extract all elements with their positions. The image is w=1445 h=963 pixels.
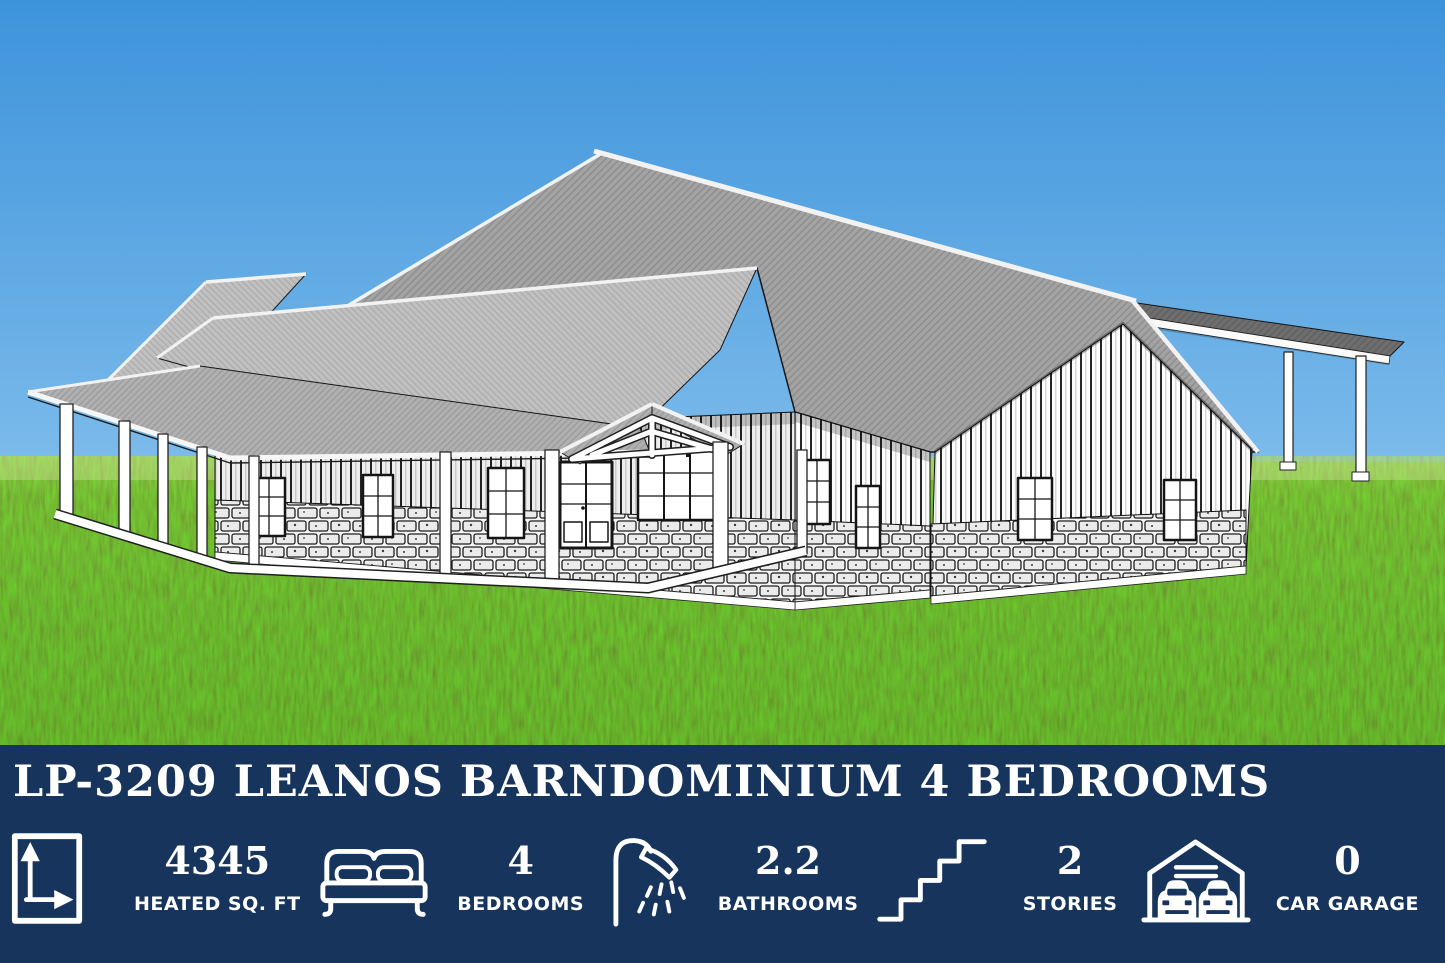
stat-label: BEDROOMS [457,893,584,915]
plan-title: LP-3209 LEANOS BARNDOMINIUM 4 BEDROOMS [0,745,1445,805]
window [804,460,830,524]
stat-value: 2.2 [755,842,821,880]
stat-value: 4 [507,842,533,880]
shower-icon [599,827,694,929]
stat-bedrooms: 4 BEDROOMS [315,831,584,926]
carport-post [1356,356,1366,476]
stat-garage: 0 CAR GARAGE [1140,831,1419,926]
rendering-scene [0,0,1445,745]
stat-value: 2 [1057,842,1083,880]
floor-area-icon [10,831,110,926]
bed-icon [315,831,433,926]
stat-value: 0 [1334,842,1360,880]
stat-label: HEATED SQ. FT [134,893,301,915]
garage-icon [1140,831,1252,926]
info-banner: LP-3209 LEANOS BARNDOMINIUM 4 BEDROOMS 4… [0,745,1445,963]
stat-heated-sqft: 4345 HEATED SQ. FT [10,831,301,926]
window [1164,480,1196,540]
entry-post [713,442,728,568]
stats-row: 4345 HEATED SQ. FT 4 BEDROOMS [0,827,1445,929]
house-plan-card: LP-3209 LEANOS BARNDOMINIUM 4 BEDROOMS 4… [0,0,1445,963]
carport-post [1284,352,1293,466]
window [638,450,716,520]
barndominium-illustration [0,0,1445,745]
stat-value: 4345 [164,842,270,880]
stairs-icon [873,832,991,924]
stat-stories: 2 STORIES [873,832,1125,924]
window [856,486,880,548]
window [488,468,524,538]
stat-label: STORIES [1023,893,1118,915]
front-door [560,462,612,548]
entry-post [545,450,559,584]
stat-label: CAR GARAGE [1276,893,1419,915]
stat-bathrooms: 2.2 BATHROOMS [599,827,859,929]
window [1018,478,1052,540]
stat-label: BATHROOMS [718,893,859,915]
window [363,475,393,537]
